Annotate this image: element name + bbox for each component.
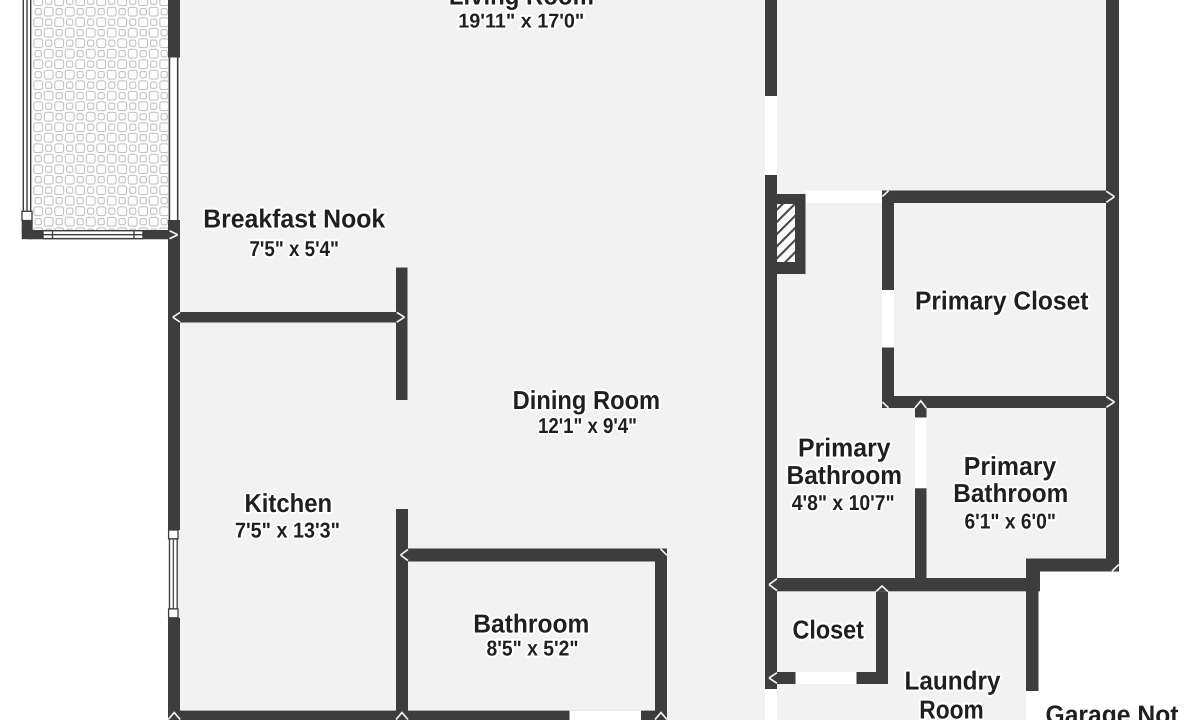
svg-text:12'1" x 9'4": 12'1" x 9'4"	[538, 414, 637, 438]
svg-text:6'1" x 6'0": 6'1" x 6'0"	[964, 509, 1056, 533]
svg-text:Bathroom: Bathroom	[473, 609, 589, 639]
svg-text:Laundry: Laundry	[905, 666, 1001, 696]
svg-text:Breakfast Nook: Breakfast Nook	[203, 204, 386, 234]
svg-text:Closet: Closet	[792, 615, 864, 645]
svg-text:4'8" x 10'7": 4'8" x 10'7"	[792, 491, 895, 515]
svg-text:Kitchen: Kitchen	[245, 488, 333, 518]
svg-text:Primary: Primary	[798, 433, 891, 463]
svg-text:8'5" x 5'2": 8'5" x 5'2"	[487, 637, 579, 661]
svg-text:7'5" x 13'3": 7'5" x 13'3"	[235, 519, 340, 543]
svg-text:19'11" x 17'0": 19'11" x 17'0"	[458, 11, 584, 33]
svg-text:Bathroom: Bathroom	[787, 460, 903, 490]
svg-text:Dining Room: Dining Room	[513, 385, 661, 415]
svg-text:Room: Room	[919, 695, 984, 720]
svg-text:Living Room: Living Room	[449, 0, 594, 11]
svg-text:7'5" x 5'4": 7'5" x 5'4"	[249, 237, 339, 261]
svg-text:Bathroom: Bathroom	[953, 478, 1068, 508]
svg-text:Garage Not: Garage Not	[1046, 699, 1179, 720]
svg-text:Primary Closet: Primary Closet	[915, 286, 1089, 316]
svg-text:Primary: Primary	[964, 451, 1057, 481]
